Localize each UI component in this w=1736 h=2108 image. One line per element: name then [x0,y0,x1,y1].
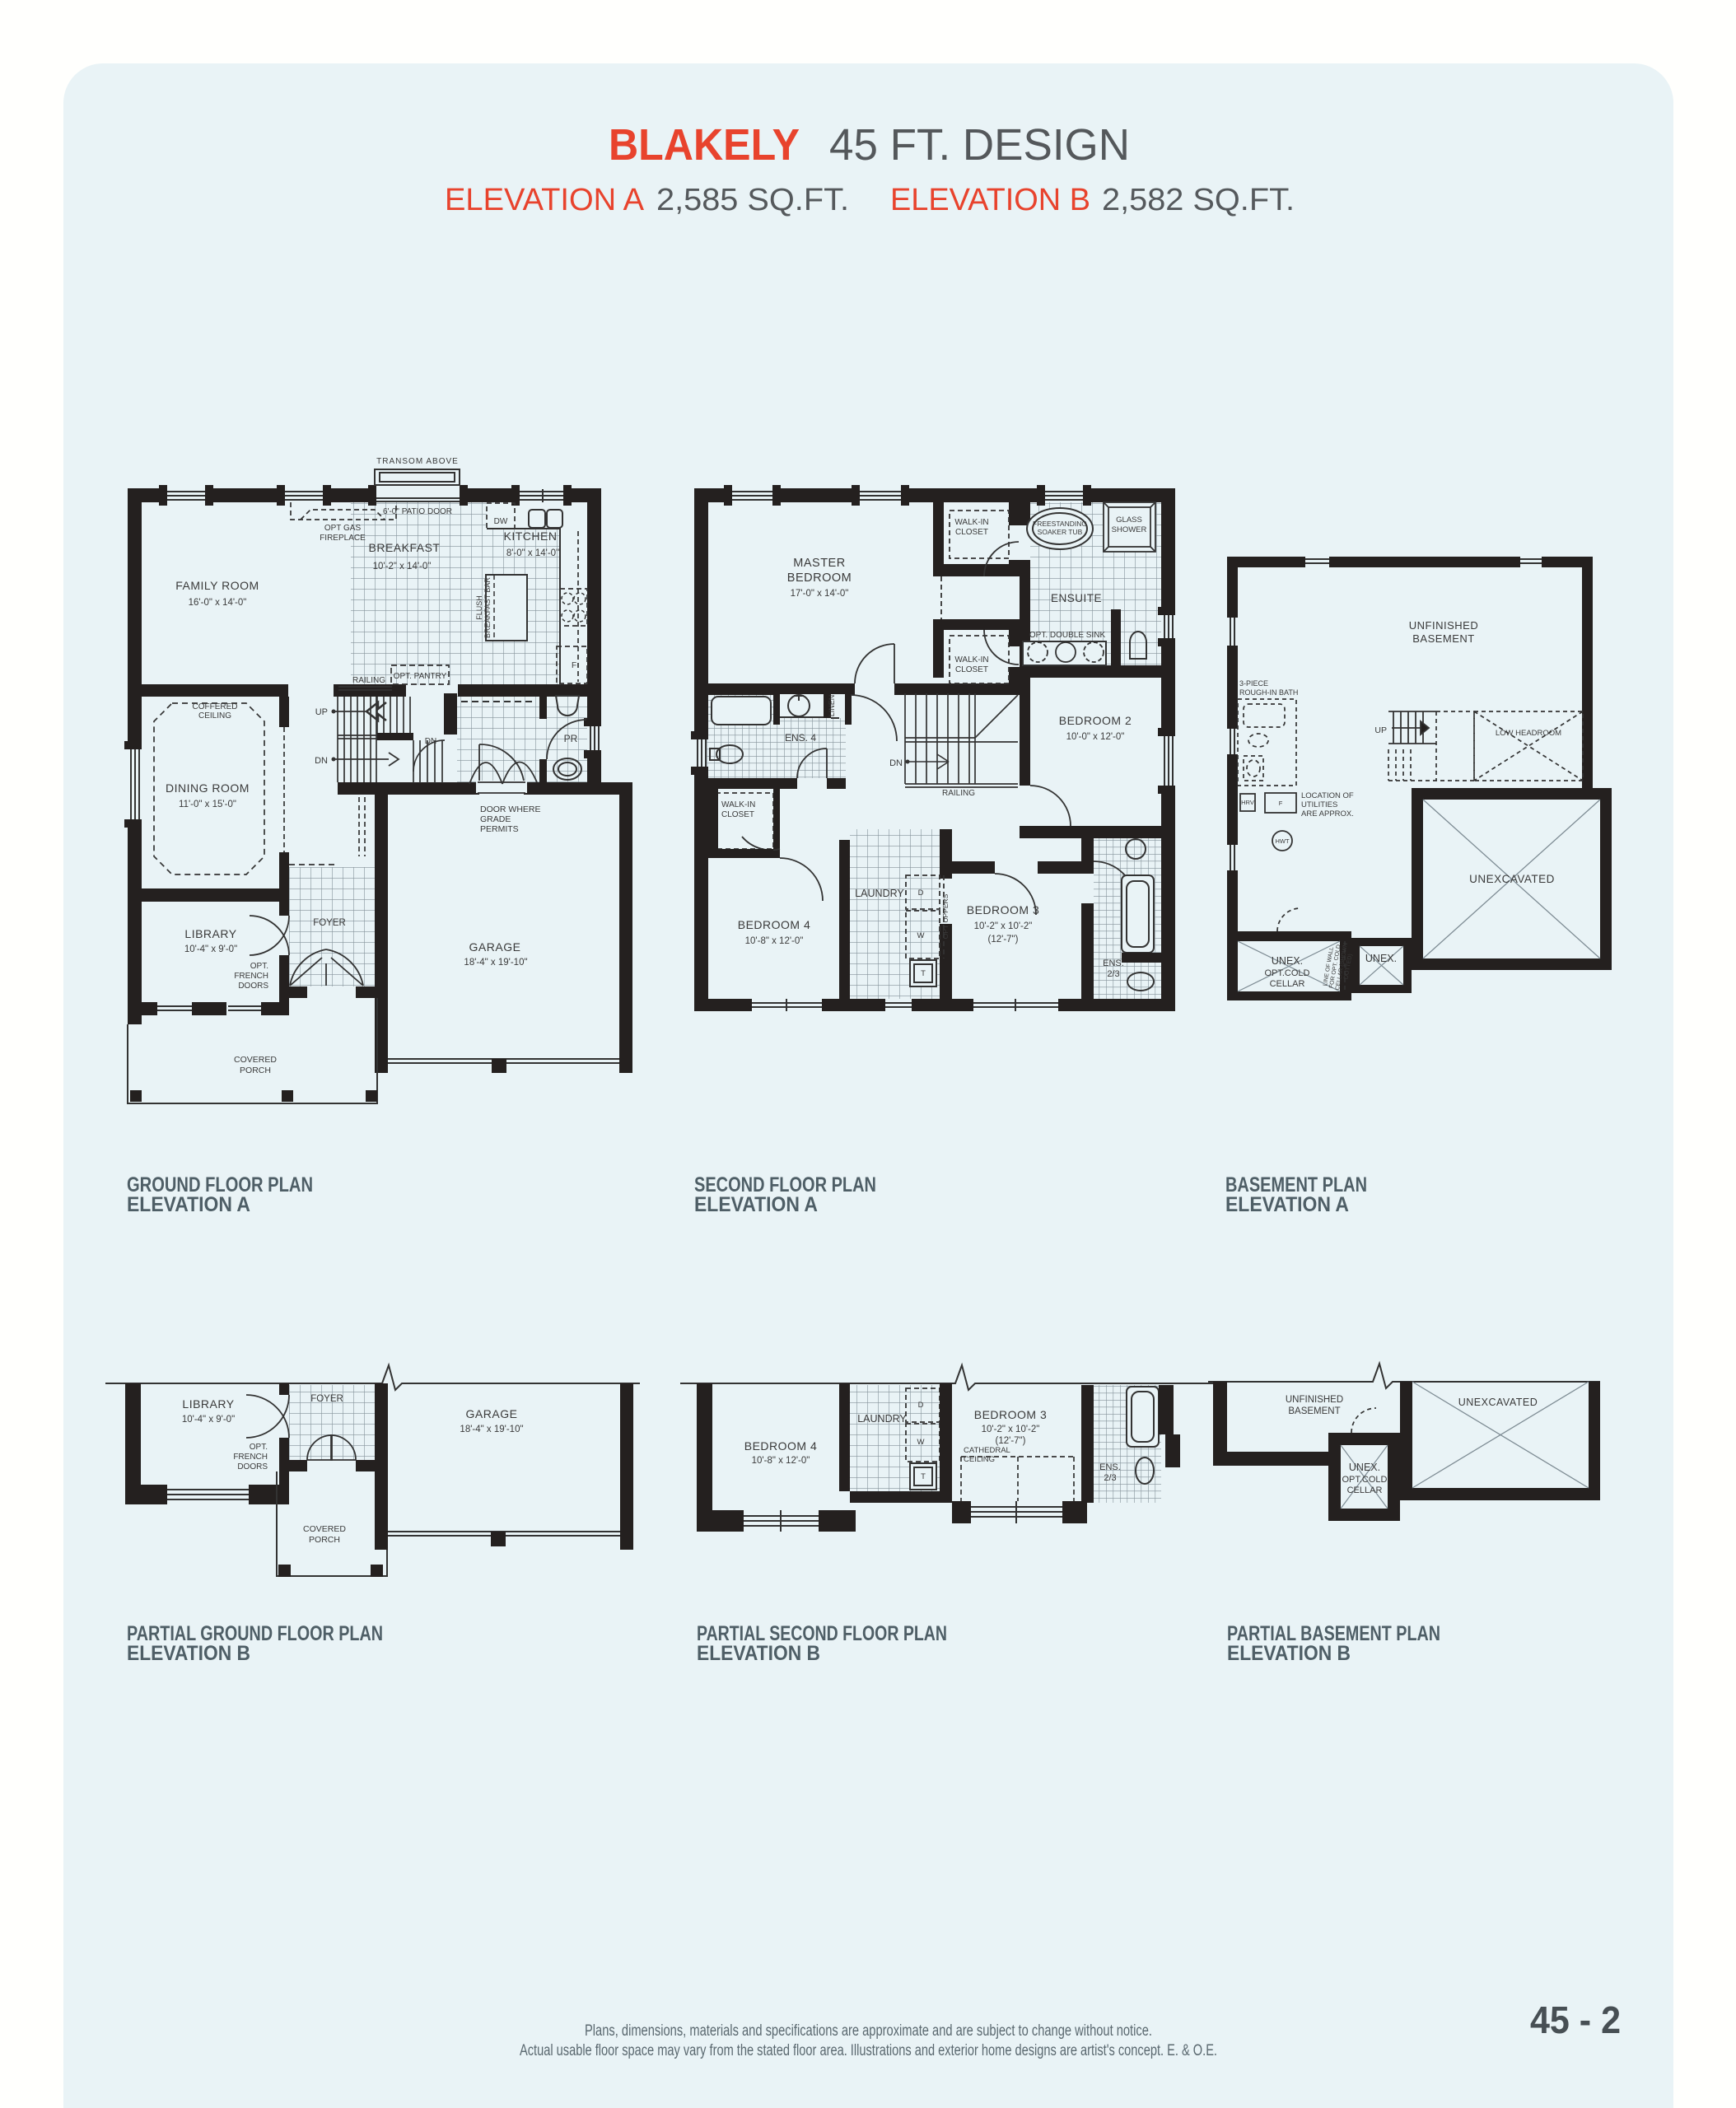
svg-text:10'-2" x 10'-2": 10'-2" x 10'-2" [974,921,1033,931]
svg-text:10'-2" x 10'-2": 10'-2" x 10'-2" [982,1425,1040,1434]
svg-text:GARAGE: GARAGE [469,940,521,954]
svg-text:RAILING: RAILING [942,789,975,798]
svg-text:OPT GAS: OPT GAS [324,524,362,533]
svg-text:UNEX.: UNEX. [1349,1462,1380,1473]
svg-text:OPT. PANTRY: OPT. PANTRY [394,672,447,681]
svg-text:BREAKFAST: BREAKFAST [369,541,441,554]
svg-text:ELEVATION A: ELEVATION A [127,1193,250,1216]
svg-text:MASTER: MASTER [793,557,845,570]
svg-text:11'-0" x 15'-0": 11'-0" x 15'-0" [179,800,236,809]
svg-text:UP: UP [315,707,328,717]
svg-text:COFFERED: COFFERED [193,702,238,711]
svg-text:UTILITIES: UTILITIES [1301,800,1337,809]
svg-text:(12'-7"): (12'-7") [996,1436,1026,1446]
svg-text:F: F [1279,800,1283,807]
svg-text:DN: DN [315,756,328,766]
svg-text:FIREPLACE: FIREPLACE [320,534,366,543]
svg-text:PORCH: PORCH [240,1066,271,1075]
svg-text:Plans, dimensions, materials a: Plans, dimensions, materials and specifi… [585,2022,1152,2040]
svg-text:LOW HEADROOM: LOW HEADROOM [1496,729,1561,738]
svg-text:ELEVATION A: ELEVATION A [1225,1193,1349,1216]
svg-text:16'-0" x 14'-0": 16'-0" x 14'-0" [189,598,247,608]
svg-text:CELLAR: CELLAR [1270,979,1305,989]
svg-text:LOCATION OF: LOCATION OF [1301,791,1354,800]
svg-text:WALK-IN: WALK-IN [954,655,988,665]
svg-text:DW: DW [494,517,508,526]
svg-text:SHOWER: SHOWER [1112,525,1147,534]
svg-text:FRENCH: FRENCH [234,972,268,981]
svg-text:UNFINISHED: UNFINISHED [1286,1395,1343,1405]
svg-text:DOORS: DOORS [237,1462,268,1471]
svg-text:17'-0" x 14'-0": 17'-0" x 14'-0" [791,589,849,599]
svg-text:FOYER: FOYER [310,1394,343,1404]
svg-text:BEDROOM 3: BEDROOM 3 [974,1408,1048,1421]
svg-text:GARAGE: GARAGE [466,1407,518,1420]
svg-text:BREAKFAST BAR: BREAKFAST BAR [483,577,492,638]
svg-text:DOORS: DOORS [238,982,268,991]
svg-text:CLOSET: CLOSET [721,810,754,819]
svg-text:2,582 SQ.FT.: 2,582 SQ.FT. [1102,183,1295,217]
svg-text:FRENCH: FRENCH [233,1453,268,1462]
svg-text:CLOSET: CLOSET [955,665,988,674]
svg-text:D: D [918,1401,924,1410]
svg-text:10'-4" x 9'-0": 10'-4" x 9'-0" [182,1415,235,1425]
svg-text:ARE APPROX.: ARE APPROX. [1301,809,1354,818]
svg-text:OPT.COLD: OPT.COLD [1264,968,1309,978]
svg-text:2,585 SQ.FT.: 2,585 SQ.FT. [656,183,849,217]
svg-text:RAILING: RAILING [352,676,385,685]
svg-text:F: F [572,661,576,670]
svg-text:ENS.: ENS. [1099,1462,1121,1472]
svg-text:GLASS: GLASS [1116,515,1142,525]
svg-text:COVERED: COVERED [303,1524,346,1534]
svg-text:ELEVATION B: ELEVATION B [697,1642,820,1665]
svg-text:ENS. 4: ENS. 4 [785,732,816,744]
svg-text:CEILING: CEILING [198,711,231,721]
svg-text:UNEXCAVATED: UNEXCAVATED [1458,1397,1538,1408]
svg-text:CATHEDRAL: CATHEDRAL [964,1446,1010,1455]
svg-text:ELEVATION B: ELEVATION B [1227,1642,1351,1665]
svg-text:W: W [917,1438,925,1447]
svg-text:CLOSET: CLOSET [955,528,988,537]
svg-text:WALK-IN: WALK-IN [954,518,988,527]
svg-text:BEDROOM: BEDROOM [787,571,852,585]
svg-text:OPT.COLD: OPT.COLD [1342,1475,1387,1485]
svg-text:BEDROOM 3: BEDROOM 3 [967,903,1040,916]
svg-text:BEDROOM 4: BEDROOM 4 [744,1439,818,1453]
svg-text:LINEN: LINEN [828,695,836,717]
svg-text:OPT.: OPT. [250,1443,268,1452]
svg-text:2/3: 2/3 [1104,1473,1116,1483]
svg-text:FOYER: FOYER [313,918,346,928]
svg-text:LIBRARY: LIBRARY [182,1397,234,1411]
svg-text:CELLAR: CELLAR [1347,1485,1383,1495]
svg-text:UNEX.: UNEX. [1365,953,1397,964]
svg-text:OPT. DOUBLE SINK: OPT. DOUBLE SINK [1029,631,1106,640]
svg-text:DN: DN [889,758,903,768]
svg-text:ELEVATION B: ELEVATION B [127,1642,250,1665]
svg-text:18'-4" x 19'-10": 18'-4" x 19'-10" [460,1425,523,1434]
svg-text:BEDROOM 2: BEDROOM 2 [1059,714,1132,727]
svg-text:CEILING: CEILING [964,1455,995,1464]
svg-text:DOOR WHERE: DOOR WHERE [480,804,541,814]
svg-text:KITCHEN: KITCHEN [504,529,558,543]
svg-text:PERMITS: PERMITS [480,824,519,834]
svg-text:UNEXCAVATED: UNEXCAVATED [1469,873,1555,885]
svg-text:UNFINISHED: UNFINISHED [1409,619,1478,632]
svg-text:PR: PR [564,733,578,744]
svg-text:45 FT. DESIGN: 45 FT. DESIGN [829,120,1130,170]
svg-text:2/3: 2/3 [1107,969,1119,979]
svg-text:BLAKELY: BLAKELY [609,120,800,170]
svg-text:10'-2" x 14'-0": 10'-2" x 14'-0" [373,562,432,571]
svg-text:W: W [917,931,925,940]
svg-text:ELEVATION B: ELEVATION B [890,183,1090,217]
svg-text:8'-0" x 14'-0": 8'-0" x 14'-0" [506,548,559,558]
svg-text:HRV: HRV [1241,799,1254,806]
svg-text:FLUSH: FLUSH [475,595,483,620]
svg-text:ELEVATION A: ELEVATION A [445,183,645,217]
svg-text:T: T [921,1472,926,1481]
svg-text:(12'-7"): (12'-7") [988,935,1019,944]
svg-text:ENS.: ENS. [1103,958,1124,968]
svg-text:T: T [921,969,926,978]
svg-text:HWT: HWT [1275,837,1289,845]
svg-text:18'-4" x 19'-10": 18'-4" x 19'-10" [464,958,527,968]
svg-text:OPT.: OPT. [250,962,268,971]
svg-text:UNEX.: UNEX. [1272,955,1303,967]
svg-text:WALK-IN: WALK-IN [721,800,755,809]
svg-text:LAUNDRY: LAUNDRY [855,888,904,899]
svg-text:TRANSOM ABOVE: TRANSOM ABOVE [376,457,459,466]
svg-text:COVERED: COVERED [234,1055,277,1065]
svg-text:ENSUITE: ENSUITE [1051,592,1102,604]
svg-text:LIBRARY: LIBRARY [184,927,236,940]
svg-text:BEDROOM 4: BEDROOM 4 [738,918,811,931]
svg-text:OPT UPPERS: OPT UPPERS [941,893,950,939]
svg-text:3-PIECE: 3-PIECE [1239,679,1268,688]
svg-text:ROUGH-IN BATH: ROUGH-IN BATH [1239,688,1298,697]
svg-text:LAUNDRY: LAUNDRY [857,1413,907,1425]
svg-text:10'-4" x 9'-0": 10'-4" x 9'-0" [184,944,237,954]
svg-text:GRADE: GRADE [480,814,511,824]
svg-text:Actual usable floor space may: Actual usable floor space may vary from … [520,2042,1217,2059]
svg-text:SOAKER TUB: SOAKER TUB [1038,528,1083,536]
svg-text:BASEMENT: BASEMENT [1412,632,1475,645]
svg-text:D: D [918,888,924,898]
svg-text:BASEMENT: BASEMENT [1288,1406,1340,1416]
svg-text:DINING ROOM: DINING ROOM [166,781,250,795]
svg-text:PORCH: PORCH [309,1535,340,1545]
svg-text:FREESTANDING: FREESTANDING [1033,520,1087,528]
svg-text:10'-8" x 12'-0": 10'-8" x 12'-0" [752,1456,810,1466]
svg-text:6'-0" PATIO DOOR: 6'-0" PATIO DOOR [383,507,452,516]
svg-text:45 - 2: 45 - 2 [1530,1998,1621,2041]
svg-text:10'-8" x 12'-0": 10'-8" x 12'-0" [745,936,804,946]
svg-text:UP: UP [1374,725,1387,735]
svg-text:FAMILY ROOM: FAMILY ROOM [175,579,259,592]
svg-text:10'-0" x 12'-0": 10'-0" x 12'-0" [1066,732,1125,742]
svg-text:ELEVATION A: ELEVATION A [694,1193,818,1216]
